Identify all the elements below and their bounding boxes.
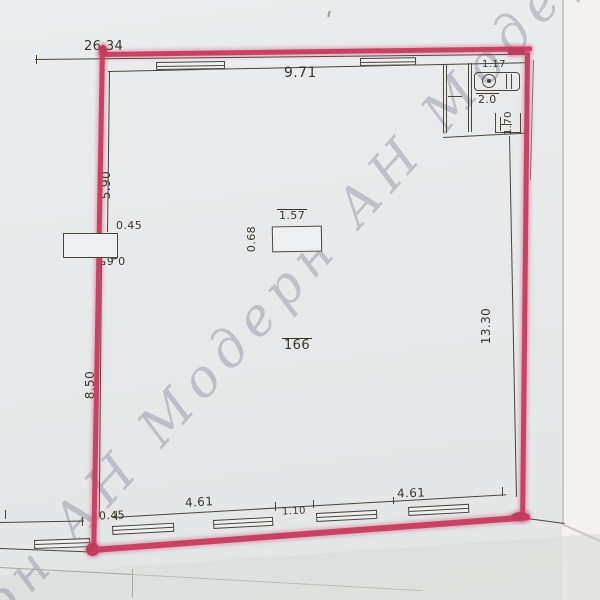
dimension-tick — [82, 517, 83, 526]
bathroom-wall — [446, 65, 447, 133]
dim-label-top-inner: 9.71 — [284, 66, 317, 81]
marker-corner-blob — [86, 543, 99, 556]
wall-line-right-outer — [530, 60, 534, 180]
paper-right-margin — [562, 0, 600, 600]
window-symbol — [112, 523, 174, 535]
column-width-text: 1.57 — [277, 209, 307, 222]
window-symbol — [408, 504, 469, 516]
room-area-label: 166 — [282, 338, 312, 353]
dimension-tick — [502, 487, 503, 496]
toilet-icon — [506, 74, 507, 89]
bathroom-label-width: 1.17 — [482, 59, 506, 70]
window-symbol — [316, 510, 377, 522]
column-label-width: 1.57 — [277, 209, 307, 222]
dimension-tick — [275, 502, 276, 511]
marker-outline-right — [520, 52, 529, 520]
column-box — [272, 226, 322, 253]
dimension-tick — [393, 497, 394, 504]
sink-icon — [495, 113, 496, 133]
stray-pen-mark — [327, 11, 330, 17]
window-symbol — [156, 61, 225, 70]
bathroom-wall — [468, 63, 469, 132]
floorplan-photo: ерн АН Модерн АН Модерн — [0, 0, 600, 600]
wall-line-right-inner — [509, 136, 517, 497]
wall-niche-box — [63, 233, 118, 258]
column-label-depth: 0.68 — [246, 226, 258, 252]
marker-arrow-blob — [508, 48, 525, 55]
dim-label-bottom-offset: 0.45 — [99, 509, 126, 522]
bathroom-wall — [443, 65, 444, 133]
toilet-icon — [511, 74, 512, 89]
bathroom-detail-line — [448, 96, 462, 97]
bathroom-area-text: 2.0 — [476, 93, 499, 106]
bathroom-wall — [471, 63, 472, 132]
marker-corner-blob — [99, 45, 107, 56]
bathroom-label-depth: 1.70 — [503, 111, 514, 135]
dim-label-bottom-mid: 1.10 — [282, 505, 306, 517]
bathroom-label-area: 2.0 — [476, 93, 499, 106]
paper-edge-right — [562, 0, 564, 525]
sink-icon — [520, 113, 521, 133]
window-symbol — [213, 517, 273, 529]
window-symbol — [360, 57, 416, 66]
dim-label-bottom-right: 4.61 — [397, 487, 426, 501]
niche-label-top: 0.45 — [116, 220, 142, 232]
dimension-tick — [313, 500, 314, 508]
toilet-icon — [474, 72, 520, 91]
dim-label-right-side: 13.30 — [480, 308, 493, 344]
toilet-icon — [487, 79, 491, 83]
wall-line-left-inner — [107, 71, 110, 232]
room-area-text: 166 — [282, 338, 312, 353]
dim-label-bottom-left: 4.61 — [185, 495, 214, 510]
dimension-tick — [36, 55, 37, 64]
wall-line-bottom-outer — [527, 518, 565, 524]
dimension-tick — [5, 510, 6, 519]
